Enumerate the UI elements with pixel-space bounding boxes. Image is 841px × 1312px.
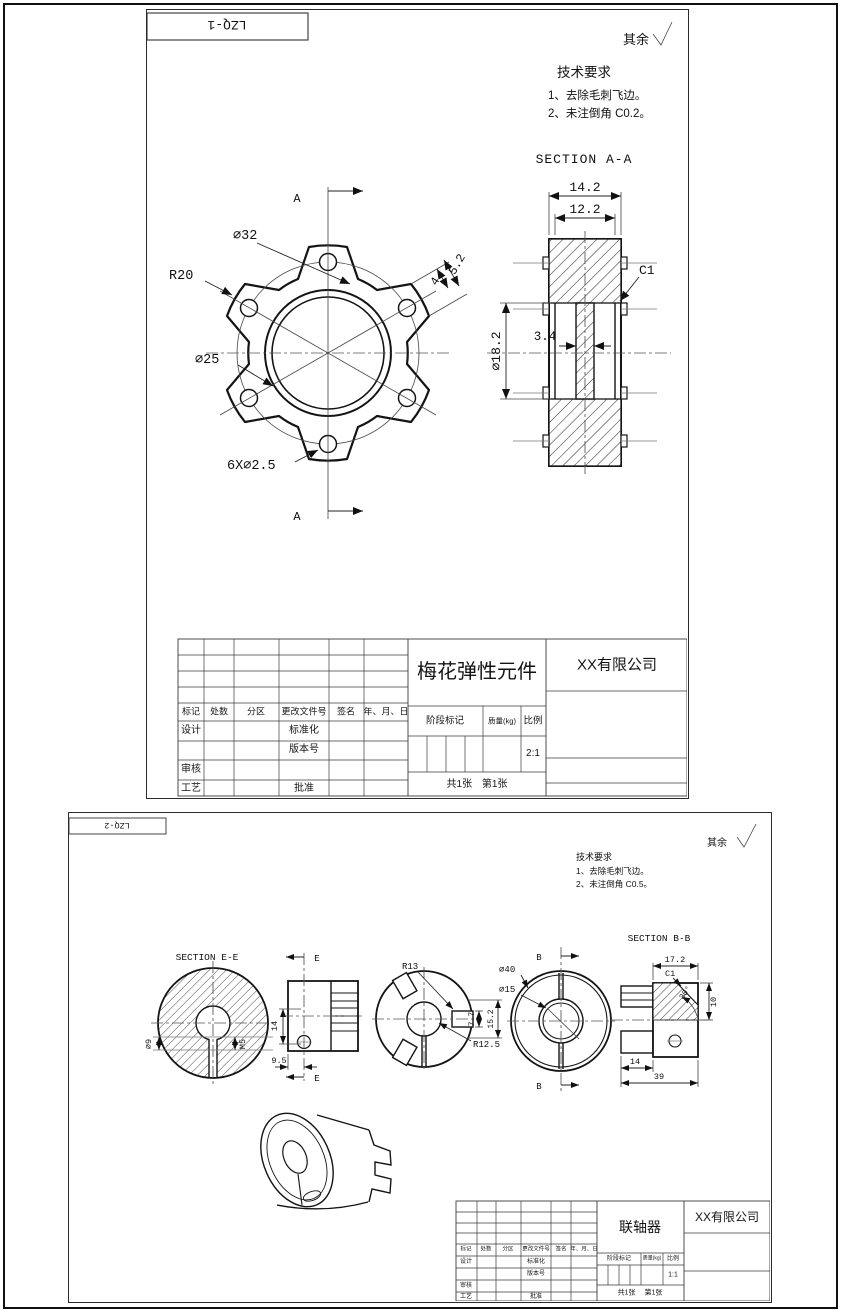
dim-c1: C1: [639, 263, 655, 278]
doc-code-box-2: LZQ-2: [69, 818, 166, 834]
dim-r20: R20: [169, 269, 193, 284]
tb2-header-date: 年、月、日: [570, 1247, 598, 1253]
tb2-header-count: 处数: [480, 1247, 491, 1253]
drawing-sheet-2: LZQ-2 其余 技术要求 1、去除毛刺飞边。 2、未注倒角 C0.5。 SEC…: [68, 812, 772, 1303]
dim-w39: 39: [654, 1072, 664, 1082]
tb2-stage-mark: 阶段标记: [607, 1256, 631, 1262]
tech-title-1: 技术要求: [557, 65, 611, 80]
tb1-audit: 审核: [181, 765, 201, 775]
tech-title-2: 技术要求: [576, 851, 612, 862]
tb1-scale-label: 比例: [523, 716, 542, 726]
tech-item-2: 2、未注倒角 C0.2。: [548, 106, 651, 120]
tb2-header-docno: 更改文件号: [522, 1247, 550, 1253]
tb2-header-mark: 标记: [460, 1247, 471, 1253]
tb1-standardize: 标准化: [289, 726, 319, 736]
dim-w172: 17.2: [665, 955, 685, 965]
tb2-header-zone: 分区: [502, 1247, 513, 1253]
dim-d95: 9.5: [271, 1056, 286, 1066]
ring-view-b: B B ∅40 ∅15: [499, 947, 615, 1093]
tb2-process: 工艺: [460, 1294, 472, 1300]
dim-w152: 15.2: [487, 1009, 496, 1028]
front-view: A A ∅32 R20 ∅25 6X∅2.5 4 5.2: [169, 187, 469, 524]
tb1-header-zone: 分区: [247, 708, 265, 717]
dim-d32: ∅32: [233, 229, 257, 244]
tb2-part-name: 联轴器: [619, 1220, 661, 1234]
dim-h14: 14: [270, 1021, 280, 1031]
section-bb-view: 30° C1 17.2 10 14 39: [611, 955, 719, 1087]
dim-w142: 14.2: [569, 180, 600, 195]
tb1-design: 设计: [181, 726, 201, 736]
tb2-audit: 审核: [460, 1283, 472, 1289]
tb2-mass: 质量(kg): [643, 1257, 662, 1262]
dim-w52: 5.2: [446, 252, 469, 278]
dim-c1-2: C1: [665, 969, 675, 979]
sheet2-drawing: LZQ-2 其余 技术要求 1、去除毛刺飞边。 2、未注倒角 C0.5。 SEC…: [69, 813, 770, 1301]
surface-finish-icon: [653, 22, 672, 45]
tb2-scale-value: 1:1: [668, 1272, 678, 1279]
slotted-circle-view: R13 R12.5 7.7 15.2: [372, 962, 502, 1071]
doc-code-1: LZQ-1: [207, 17, 246, 32]
cut-letter-a-top: A: [293, 192, 301, 206]
tb2-company: XX有限公司: [695, 1211, 759, 1223]
tb1-mass: 质量(kg): [488, 717, 516, 725]
page: LZQ-1 其余 技术要求 1、去除毛刺飞边。 2、未注倒角 C0.2。 SEC…: [0, 0, 841, 1312]
tb1-company: XX有限公司: [577, 658, 657, 673]
dim-w122: 12.2: [569, 202, 600, 217]
tech-requirements-1: 技术要求 1、去除毛刺飞边。 2、未注倒角 C0.2。: [548, 65, 651, 120]
isometric-view: [247, 1102, 391, 1218]
side-view-e: E E 14 9.5: [270, 953, 365, 1084]
tb2-sheet-info: 共1张 第1张: [618, 1290, 663, 1297]
tech-requirements-2: 技术要求 1、去除毛刺飞边。 2、未注倒角 C0.5。: [576, 851, 652, 889]
section-aa-title: SECTION A-A: [536, 152, 633, 167]
drawing-sheet-1: LZQ-1 其余 技术要求 1、去除毛刺飞边。 2、未注倒角 C0.2。 SEC…: [146, 9, 689, 799]
tb2-standardize: 标准化: [527, 1259, 545, 1265]
dim-d15: ∅15: [499, 985, 515, 995]
doc-code-2: LZQ-2: [104, 820, 130, 830]
tb1-process: 工艺: [181, 784, 201, 794]
tb1-header-count: 处数: [210, 708, 228, 717]
tb1-part-name: 梅花弹性元件: [417, 662, 537, 682]
dim-w4: 4: [428, 275, 444, 288]
surface-note-text-1: 其余: [623, 32, 649, 47]
section-aa-view: 14.2 12.2 C1 ∅18.2 3.4: [487, 180, 671, 474]
dim-w10: 10: [709, 997, 719, 1007]
tb1-header-docno: 更改文件号: [281, 708, 326, 717]
tech-item-4: 2、未注倒角 C0.5。: [576, 879, 652, 889]
tb2-version: 版本号: [527, 1271, 545, 1277]
dim-r13: R13: [402, 962, 418, 972]
surface-finish-icon-2: [737, 824, 756, 847]
section-ee-title: SECTION E-E: [176, 952, 239, 963]
dim-bore: ∅18.2: [489, 331, 504, 370]
tb1-header-date: 年、月、日: [363, 708, 408, 717]
dim-d40: ∅40: [499, 965, 515, 975]
cut-letter-e-top: E: [314, 954, 319, 964]
dim-w77: 7.7: [468, 1012, 477, 1027]
dim-w14: 14: [630, 1057, 640, 1067]
tb1-approve: 批准: [294, 784, 314, 794]
cut-letter-e-bottom: E: [314, 1074, 319, 1084]
dim-holes: 6X∅2.5: [227, 459, 276, 474]
tb2-header-sign: 签名: [555, 1247, 566, 1253]
tb2-design: 设计: [460, 1259, 472, 1265]
dim-r125: R12.5: [473, 1040, 500, 1050]
dim-d25: ∅25: [195, 353, 219, 368]
dim-d9: ∅9: [144, 1039, 154, 1049]
section-bb-title: SECTION B-B: [628, 933, 691, 944]
surface-finish-note-2: 其余: [707, 824, 756, 849]
dim-web: 3.4: [534, 330, 557, 344]
tb1-stage-mark: 阶段标记: [426, 716, 464, 726]
tb1-scale-value: 2:1: [526, 749, 540, 759]
tb1-header-sign: 签名: [337, 708, 355, 717]
cut-letter-b-top: B: [536, 953, 542, 963]
dim-m5: M5: [238, 1039, 248, 1049]
cut-letter-b-bottom: B: [536, 1082, 542, 1092]
doc-code-box-1: LZQ-1: [147, 13, 308, 40]
tb1-sheet-info: 共1张 第1张: [447, 780, 508, 790]
surface-note-text-2: 其余: [707, 836, 727, 849]
surface-finish-note-1: 其余: [623, 22, 672, 47]
tb1-version: 版本号: [289, 745, 319, 755]
cut-letter-a-bottom: A: [293, 510, 301, 524]
section-ee-view: ∅9 M5: [144, 961, 275, 1085]
tb2-approve: 批准: [530, 1294, 542, 1300]
tb1-header-mark: 标记: [182, 708, 200, 717]
tb2-scale-label: 比例: [667, 1256, 679, 1262]
tech-item-1: 1、去除毛刺飞边。: [548, 88, 646, 102]
tech-item-3: 1、去除毛刺飞边。: [576, 866, 649, 876]
